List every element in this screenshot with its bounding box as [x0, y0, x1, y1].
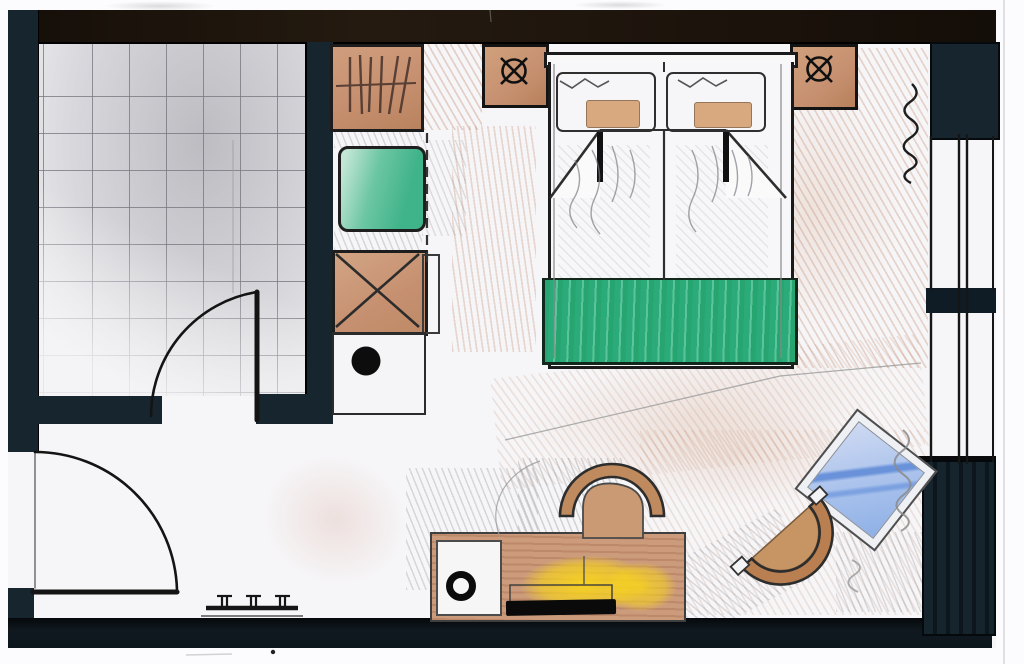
hatch-patch — [424, 44, 482, 130]
window-pier-middle — [926, 288, 996, 313]
tile-fade — [34, 42, 305, 396]
wall-left — [8, 10, 39, 452]
pencil-dash — [186, 654, 232, 655]
minibar-cabinet — [332, 250, 428, 336]
wall-top — [28, 10, 996, 44]
nightstand-right — [790, 44, 858, 110]
wall-bathroom-south-left — [34, 396, 162, 424]
wall-bathroom-south-right — [256, 394, 331, 424]
cabinet-side-panel — [422, 254, 440, 334]
duvet-shading — [676, 145, 768, 285]
ink-dot — [271, 650, 275, 654]
scan-smudge — [560, 0, 680, 10]
pillow-left — [556, 72, 656, 132]
window-pier-top — [930, 42, 1000, 140]
wall-bathroom-partition — [305, 42, 333, 424]
vanity-counter — [332, 332, 426, 415]
wall-corner-column — [922, 460, 996, 636]
pillow-core — [694, 102, 752, 128]
pillow-right — [666, 72, 766, 132]
duvet-shading — [558, 145, 650, 285]
green-cabinet — [338, 146, 426, 232]
bathroom-tiled-floor — [34, 42, 305, 396]
desk-lamp-glow — [590, 553, 690, 621]
hatch-patch — [422, 140, 466, 236]
wardrobe — [330, 44, 424, 132]
nightstand-left — [482, 44, 549, 108]
bed-runner — [542, 278, 798, 365]
floor-plan — [0, 0, 1024, 664]
pillow-core — [586, 100, 640, 128]
desk-compartment — [436, 540, 502, 616]
